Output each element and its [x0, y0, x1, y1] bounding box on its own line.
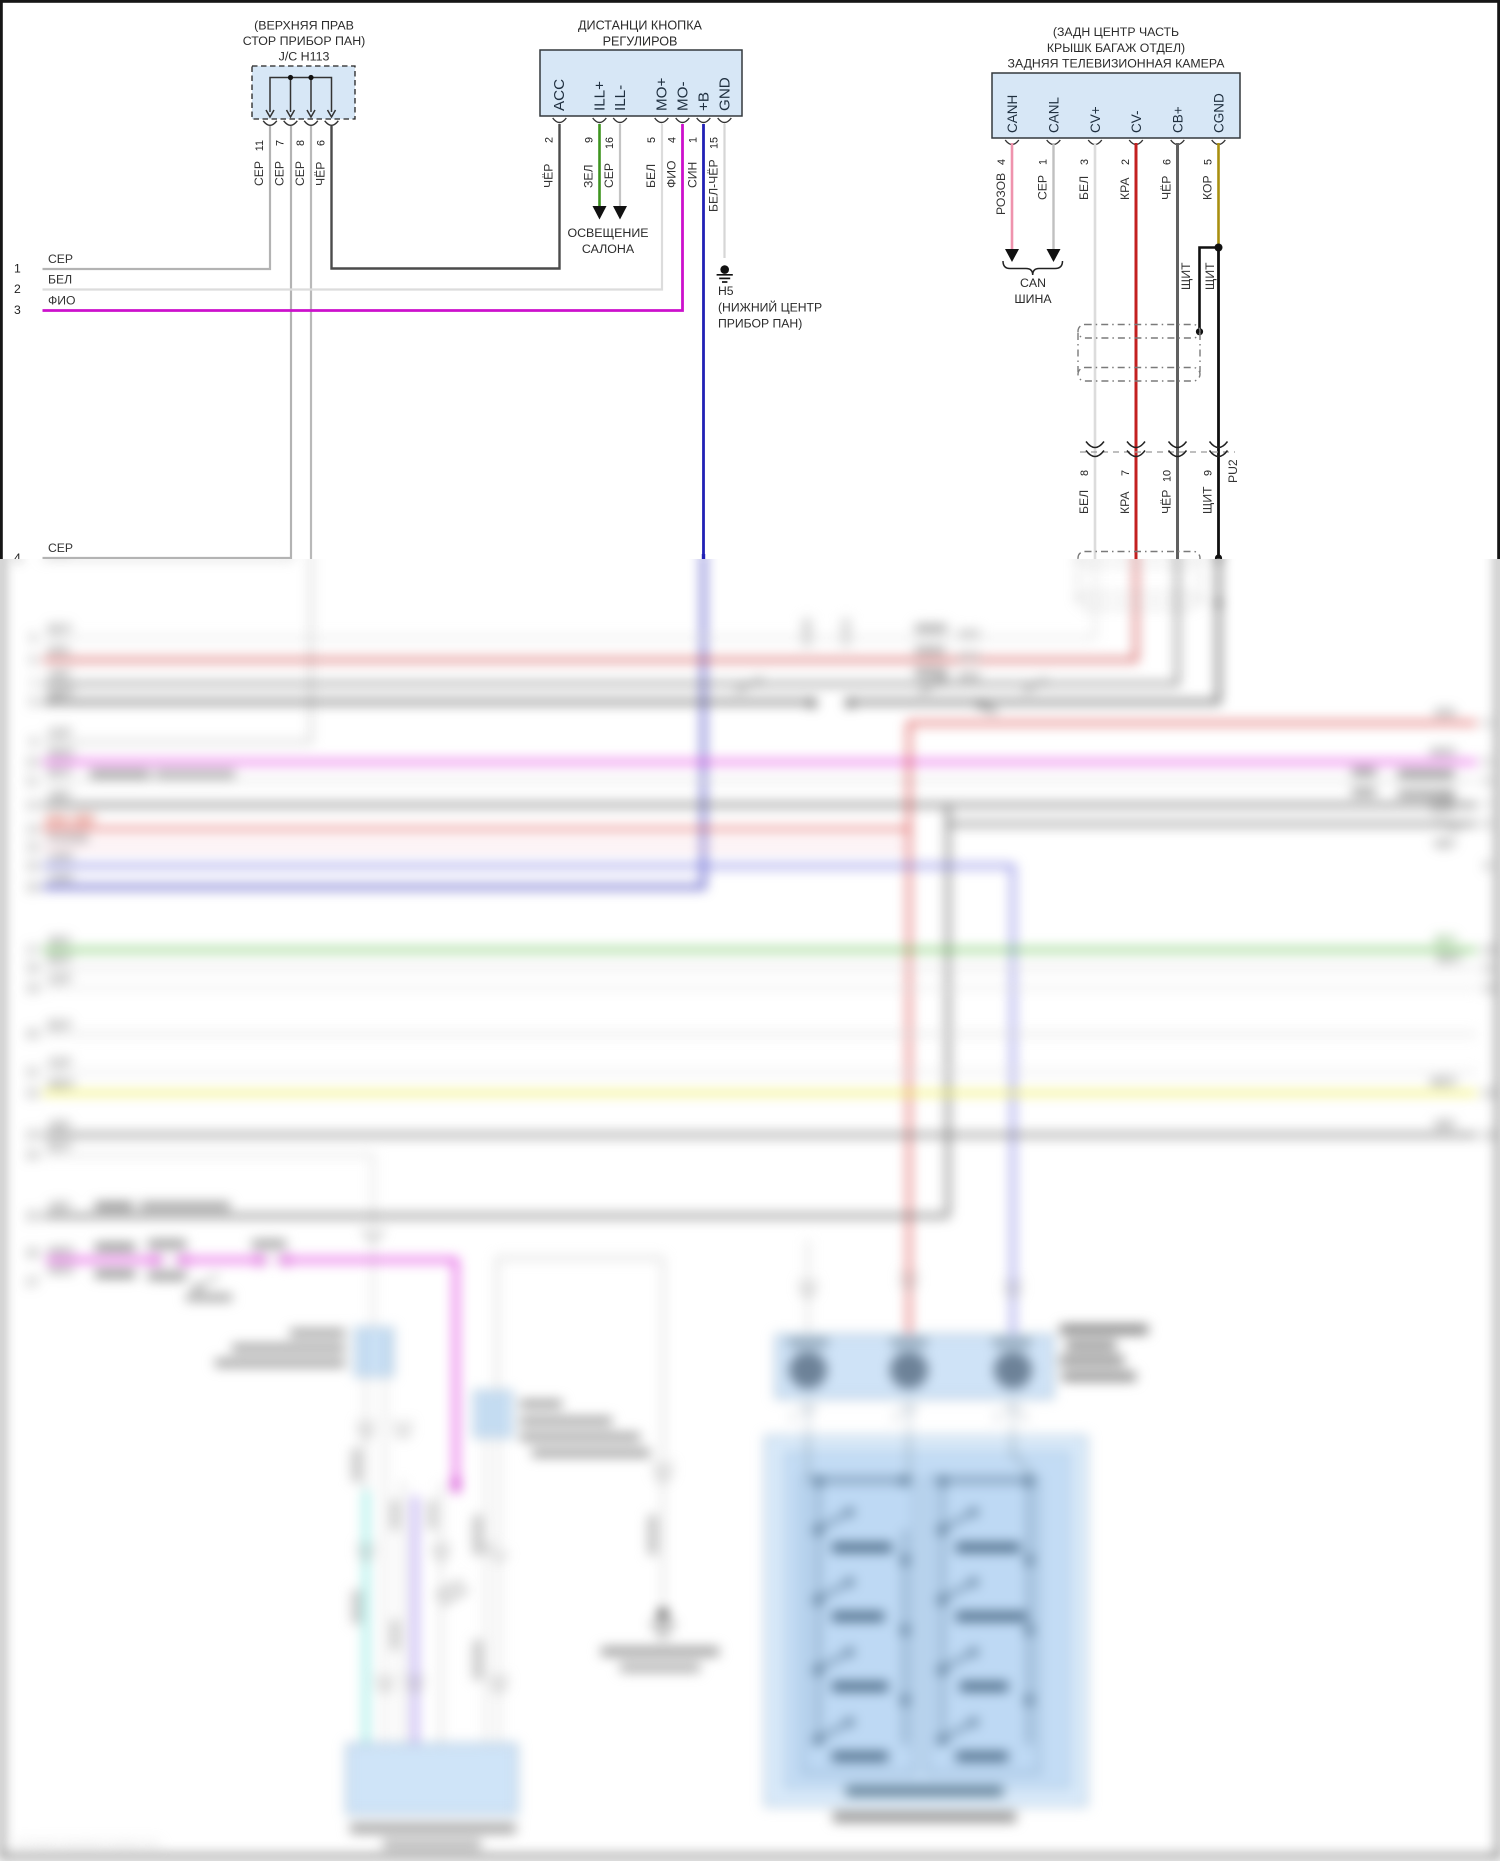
- svg-text:2: 2: [14, 282, 21, 296]
- svg-text:КРА: КРА: [1118, 491, 1132, 514]
- svg-text:СЕР: СЕР: [293, 161, 307, 186]
- svg-text:H5: H5: [718, 284, 734, 298]
- svg-text:6: 6: [1162, 159, 1174, 165]
- svg-text:1: 1: [14, 262, 21, 276]
- svg-text:ШИНА: ШИНА: [1014, 292, 1052, 306]
- svg-text:ЧЁР: ЧЁР: [1160, 176, 1174, 200]
- svg-text:4: 4: [667, 137, 679, 143]
- svg-text:1: 1: [1038, 159, 1050, 165]
- svg-text:1: 1: [688, 137, 700, 143]
- svg-text:8: 8: [1079, 470, 1091, 476]
- svg-text:ЩИТ: ЩИТ: [1201, 486, 1215, 514]
- svg-text:ОСВЕЩЕНИЕ: ОСВЕЩЕНИЕ: [567, 226, 648, 240]
- svg-text:2: 2: [1120, 159, 1132, 165]
- svg-text:БЕЛ: БЕЛ: [48, 273, 72, 287]
- svg-text:КОР: КОР: [1201, 175, 1215, 200]
- svg-text:ILL+: ILL+: [592, 81, 609, 111]
- svg-text:БЕЛ: БЕЛ: [644, 164, 658, 188]
- svg-text:GND: GND: [717, 77, 734, 111]
- svg-text:СЕР: СЕР: [48, 541, 73, 555]
- svg-text:CB+: CB+: [1171, 106, 1186, 133]
- svg-text:9: 9: [584, 137, 596, 143]
- svg-text:СЕР: СЕР: [273, 161, 287, 186]
- svg-text:СТОР ПРИБОР ПАН): СТОР ПРИБОР ПАН): [243, 34, 366, 48]
- svg-text:ILL-: ILL-: [612, 85, 629, 111]
- svg-text:+B: +B: [696, 92, 713, 111]
- svg-text:MO+: MO+: [654, 78, 671, 111]
- svg-text:4: 4: [996, 159, 1008, 165]
- svg-text:СЕР: СЕР: [602, 163, 616, 188]
- svg-text:РОЗОВ: РОЗОВ: [994, 173, 1008, 215]
- svg-text:CGND: CGND: [1212, 93, 1227, 133]
- svg-text:16: 16: [604, 137, 616, 149]
- svg-text:10: 10: [1162, 470, 1174, 482]
- svg-text:5: 5: [646, 137, 658, 143]
- svg-text:БЕЛ: БЕЛ: [1077, 176, 1091, 200]
- svg-text:СЕР: СЕР: [48, 252, 73, 266]
- svg-text:ЩИТ: ЩИТ: [1203, 262, 1217, 290]
- svg-text:PU2: PU2: [1226, 459, 1240, 483]
- svg-text:2: 2: [544, 137, 556, 143]
- svg-text:ПРИБОР ПАН): ПРИБОР ПАН): [718, 317, 802, 331]
- svg-text:(ВЕРХНЯЯ ПРАВ: (ВЕРХНЯЯ ПРАВ: [254, 19, 354, 33]
- svg-text:8: 8: [295, 140, 307, 146]
- svg-text:CANH: CANH: [1005, 95, 1020, 133]
- svg-text:ФИО: ФИО: [665, 160, 679, 188]
- svg-text:СЕР: СЕР: [1036, 175, 1050, 200]
- svg-text:ЩИТ: ЩИТ: [1179, 262, 1193, 290]
- svg-text:J/C H113: J/C H113: [279, 50, 330, 64]
- svg-text:9: 9: [1203, 470, 1215, 476]
- svg-text:15: 15: [709, 137, 721, 149]
- svg-text:(НИЖНИЙ ЦЕНТР: (НИЖНИЙ ЦЕНТР: [718, 300, 822, 315]
- svg-text:СИН: СИН: [686, 162, 700, 188]
- svg-text:СЕР: СЕР: [252, 161, 266, 186]
- svg-text:ЧЁР: ЧЁР: [542, 164, 556, 188]
- svg-text:5: 5: [1203, 159, 1215, 165]
- svg-text:7: 7: [1120, 470, 1132, 476]
- svg-text:РЕГУЛИРОВ: РЕГУЛИРОВ: [603, 35, 678, 49]
- svg-text:(ЗАДН ЦЕНТР ЧАСТЬ: (ЗАДН ЦЕНТР ЧАСТЬ: [1053, 25, 1179, 39]
- svg-text:4: 4: [14, 551, 21, 559]
- svg-text:БЕЛ-ЧЁР: БЕЛ-ЧЁР: [707, 159, 721, 212]
- svg-text:ФИО: ФИО: [48, 294, 76, 308]
- svg-text:CV-: CV-: [1129, 110, 1144, 133]
- svg-text:БЕЛ: БЕЛ: [1077, 490, 1091, 514]
- svg-text:3: 3: [14, 303, 21, 317]
- svg-text:6: 6: [316, 140, 328, 146]
- svg-text:CAN: CAN: [1020, 276, 1046, 290]
- svg-text:ЗЕЛ: ЗЕЛ: [582, 165, 596, 189]
- svg-text:3: 3: [1079, 159, 1091, 165]
- svg-text:7: 7: [275, 140, 287, 146]
- svg-text:ЗАДНЯЯ ТЕЛЕВИЗИОННАЯ КАМЕРА: ЗАДНЯЯ ТЕЛЕВИЗИОННАЯ КАМЕРА: [1008, 57, 1226, 71]
- svg-text:ACC: ACC: [551, 79, 568, 111]
- svg-text:CANL: CANL: [1047, 96, 1062, 133]
- svg-text:ЧЁР: ЧЁР: [1160, 490, 1174, 514]
- svg-text:MO-: MO-: [675, 81, 692, 111]
- svg-text:CV+: CV+: [1088, 106, 1103, 133]
- svg-text:11: 11: [254, 140, 266, 151]
- svg-text:ЧЁР: ЧЁР: [314, 162, 328, 186]
- svg-text:САЛОНА: САЛОНА: [582, 242, 635, 256]
- svg-text:КРА: КРА: [1118, 177, 1132, 200]
- svg-text:КРЫШК БАГАЖ ОТДЕЛ): КРЫШК БАГАЖ ОТДЕЛ): [1047, 41, 1185, 55]
- svg-text:ДИСТАНЦИ КНОПКА: ДИСТАНЦИ КНОПКА: [578, 19, 703, 33]
